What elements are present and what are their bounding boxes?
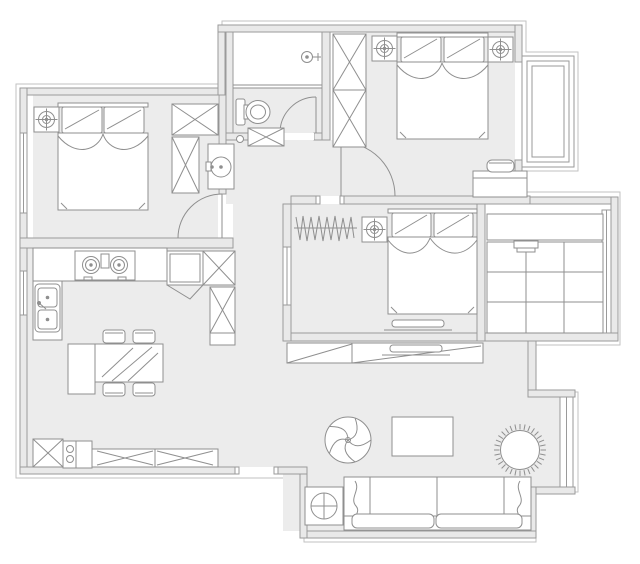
bedroom-topleft-ceiling-lamp-icon xyxy=(34,107,59,132)
floor-plan-canvas xyxy=(0,0,640,564)
tatami-room xyxy=(487,214,603,333)
bedroom-middle-ceiling-lamp-icon xyxy=(362,217,387,242)
hall-wardrobe xyxy=(333,34,366,147)
living-sofa xyxy=(344,477,531,530)
floor-plan-page xyxy=(0,0,640,564)
living-tv-cabinet xyxy=(287,343,483,363)
living-side-table xyxy=(305,487,343,525)
bathroom-shower-head-icon xyxy=(302,52,322,63)
living-coffee-table xyxy=(392,417,453,456)
kitchen-stove xyxy=(75,251,135,280)
kitchen-sink xyxy=(35,284,60,332)
bathroom-toilet xyxy=(236,99,270,125)
living-swivel-chair xyxy=(494,424,546,476)
living-ceiling-fan-icon xyxy=(325,417,371,463)
hall-vanity-basin xyxy=(206,144,234,189)
